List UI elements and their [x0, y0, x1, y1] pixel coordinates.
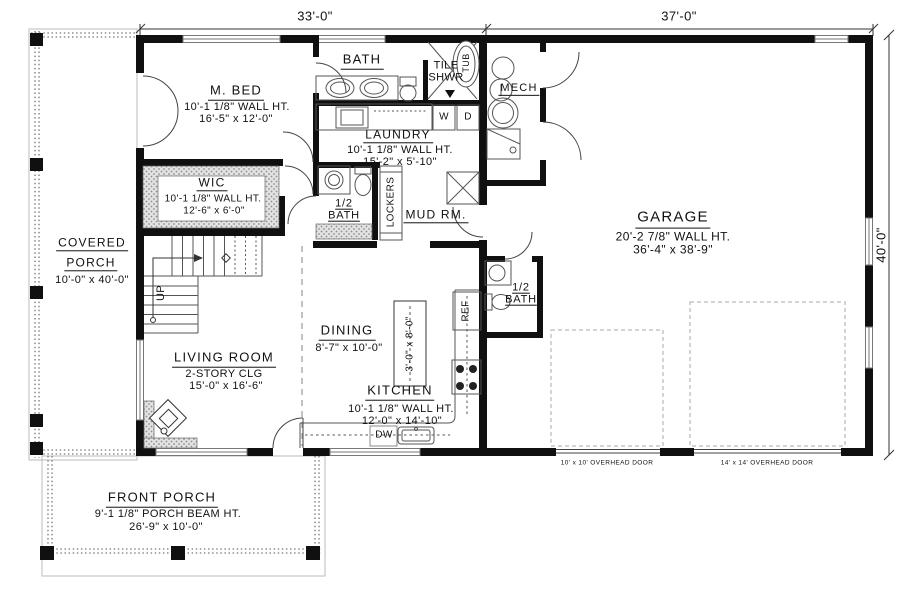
mech-fixtures	[487, 57, 520, 159]
wic-size: 12'-6" x 6'-0"	[183, 205, 245, 216]
wic-wall-ht: 10'-1 1/8" WALL HT.	[165, 193, 262, 204]
room-label-kitchen: KITCHEN	[365, 384, 434, 401]
room-label-covered-porch-1: COVERED	[56, 236, 128, 251]
laundry-wall-ht: 10'-1 1/8" WALL HT.	[347, 144, 453, 156]
washer-label: W	[439, 111, 449, 122]
lockers-label: LOCKERS	[385, 177, 396, 228]
room-label-living-room: LIVING ROOM	[172, 351, 276, 368]
garage-size: 36'-4" x 38'-9"	[633, 243, 713, 256]
bath-fixtures	[316, 76, 416, 101]
room-label-mech: MECH	[498, 82, 539, 96]
range-icon	[452, 360, 481, 394]
room-label-dining: DINING	[319, 324, 376, 341]
dim-right-side: 40'-0"	[875, 227, 890, 263]
kitchen-wall-ht: 10'-1 1/8" WALL HT.	[348, 403, 454, 415]
dim-top-right: 37'-0"	[661, 10, 697, 25]
overhead-door-large-label: 14' x 14' OVERHEAD DOOR	[721, 459, 814, 466]
stairs-up-label: UP	[155, 285, 167, 301]
floor-plan: 33'-0" 37'-0" 40'-0" M. BED 10'-1 1/8" W…	[0, 0, 900, 595]
overhead-door-small-label: 10' x 10' OVERHEAD DOOR	[561, 459, 654, 466]
kitchen-size: 12'-0" x 14'-10"	[362, 415, 442, 427]
room-label-m-bed: M. BED	[208, 84, 264, 101]
shower-head-icon	[445, 90, 455, 98]
room-label-bath: BATH	[341, 53, 384, 70]
laundry-size: 15'-2" x 5'-10"	[363, 156, 437, 168]
living-room-size: 15'-0" x 16'-6"	[189, 380, 263, 392]
half-bath-upper-fixtures	[318, 166, 371, 196]
stair-direction-arrow	[194, 254, 203, 262]
room-label-garage: GARAGE	[635, 210, 710, 229]
dining-size: 8'-7" x 10'-0"	[315, 342, 382, 354]
dim-top-left: 33'-0"	[297, 10, 333, 25]
front-porch-beam-ht: 9'-1 1/8" PORCH BEAM HT.	[95, 508, 241, 520]
overhead-doors	[551, 302, 845, 453]
m-bed-wall-ht: 10'-1 1/8" WALL HT.	[184, 101, 290, 113]
tub-label: TUB	[461, 53, 471, 72]
room-label-half-bath-lower: 1/2 BATH	[501, 282, 541, 307]
front-porch-size: 26'-9" x 10'-0"	[129, 521, 203, 533]
island-size: 3'-0" x 8'-0"	[404, 316, 415, 372]
room-label-laundry: LAUNDRY	[363, 128, 433, 143]
furnace-icon	[487, 129, 520, 159]
dishwasher-label: DW	[375, 429, 392, 440]
dryer-label: D	[464, 111, 472, 122]
m-bed-size: 16'-5" x 12'-0"	[199, 113, 273, 125]
fireplace	[150, 400, 187, 437]
laundry-fixtures	[316, 104, 479, 130]
living-room-ceiling: 2-STORY CLG	[185, 368, 262, 380]
covered-porch-size: 10'-0" x 40'-0"	[55, 274, 129, 286]
covered-porch-posts	[30, 33, 43, 455]
room-label-front-porch: FRONT PORCH	[106, 491, 218, 508]
room-label-wic: WIC	[197, 176, 228, 191]
refrigerator-label: REF	[460, 300, 471, 321]
room-label-half-bath-upper: 1/2 BATH	[324, 198, 364, 223]
room-label-mud-rm: MUD RM.	[403, 208, 468, 223]
room-label-covered-porch-2: PORCH	[64, 256, 117, 271]
